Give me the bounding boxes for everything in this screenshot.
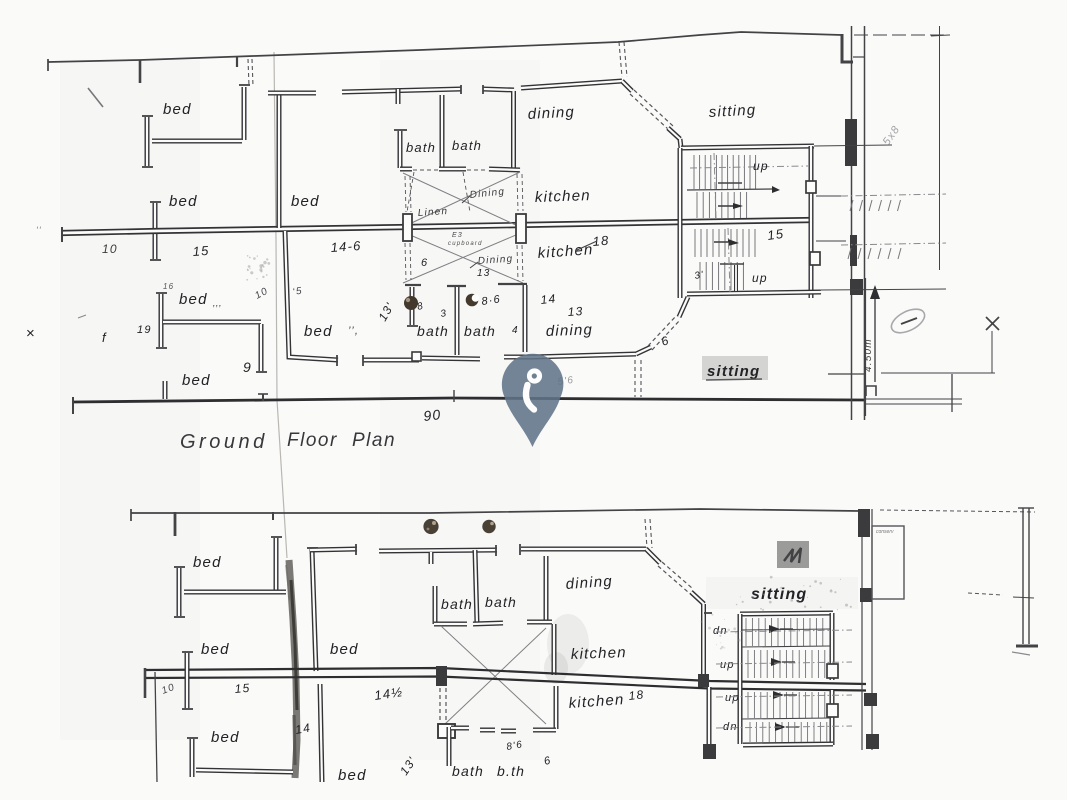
svg-text:13: 13 bbox=[477, 268, 491, 279]
svg-text:bath: bath bbox=[406, 140, 436, 155]
svg-text:up: up bbox=[720, 659, 735, 671]
svg-text:f: f bbox=[102, 330, 107, 345]
svg-text:bath: bath bbox=[452, 138, 482, 153]
svg-text:16: 16 bbox=[163, 282, 174, 291]
svg-text:14: 14 bbox=[294, 720, 312, 737]
svg-text:dn: dn bbox=[723, 721, 738, 733]
svg-text:’’,: ’’, bbox=[348, 325, 359, 337]
svg-text:18: 18 bbox=[592, 233, 610, 249]
svg-text:kitchen: kitchen bbox=[571, 644, 627, 663]
svg-text:15: 15 bbox=[234, 681, 251, 696]
svg-text:90: 90 bbox=[423, 406, 443, 424]
svg-text:10: 10 bbox=[102, 242, 118, 256]
svg-text:up: up bbox=[753, 159, 769, 173]
svg-text:Ground: Ground bbox=[180, 431, 268, 453]
svg-text:Floor: Floor bbox=[287, 430, 338, 451]
svg-text:sitting: sitting bbox=[708, 102, 756, 121]
svg-text:sitting: sitting bbox=[751, 586, 807, 603]
svg-text:dining: dining bbox=[527, 104, 575, 123]
svg-text:E3: E3 bbox=[452, 232, 463, 239]
svg-text:bed: bed bbox=[201, 641, 230, 658]
svg-text:4: 4 bbox=[512, 325, 519, 336]
svg-text:6: 6 bbox=[421, 257, 428, 269]
svg-text:bed: bed bbox=[182, 372, 211, 389]
svg-text:kitchen: kitchen bbox=[535, 187, 591, 206]
svg-text:15: 15 bbox=[766, 226, 785, 243]
svg-text:bed: bed bbox=[169, 193, 198, 210]
svg-text:×: × bbox=[26, 325, 36, 342]
svg-text:9: 9 bbox=[243, 359, 252, 375]
svg-text:bed: bed bbox=[330, 641, 359, 658]
svg-text:3': 3' bbox=[694, 269, 706, 282]
svg-text:bath: bath bbox=[441, 596, 473, 612]
svg-text:bed: bed bbox=[211, 729, 240, 746]
svg-text:bed: bed bbox=[291, 193, 320, 210]
svg-text:bed: bed bbox=[304, 323, 333, 340]
svg-text:Linen: Linen bbox=[417, 206, 448, 219]
svg-text:dining: dining bbox=[565, 573, 613, 593]
svg-text:19: 19 bbox=[137, 324, 152, 336]
svg-text:bath: bath bbox=[452, 763, 484, 779]
svg-text:bath: bath bbox=[417, 323, 449, 339]
svg-text:18: 18 bbox=[628, 687, 645, 703]
svg-text:b.th: b.th bbox=[497, 763, 525, 779]
svg-text:Plan: Plan bbox=[352, 430, 396, 451]
svg-text:bed: bed bbox=[338, 767, 367, 784]
svg-text:14-6: 14-6 bbox=[330, 238, 362, 255]
svg-text:sitting: sitting bbox=[707, 363, 760, 380]
svg-text:cupboard: cupboard bbox=[448, 241, 483, 247]
svg-text:’’’: ’’’ bbox=[212, 304, 222, 315]
svg-text:14: 14 bbox=[540, 291, 557, 307]
svg-text:bed: bed bbox=[179, 291, 208, 308]
svg-text:dining: dining bbox=[546, 321, 594, 340]
svg-text:up: up bbox=[752, 271, 768, 285]
svg-text:bath: bath bbox=[464, 323, 496, 339]
svg-text:15: 15 bbox=[192, 243, 210, 259]
svg-text:up: up bbox=[725, 692, 740, 704]
svg-text:bath: bath bbox=[485, 594, 517, 610]
svg-text:‘‘: ‘‘ bbox=[36, 225, 42, 235]
svg-text:conserv: conserv bbox=[876, 529, 894, 535]
svg-text:bed: bed bbox=[193, 554, 222, 571]
svg-text:4.50m: 4.50m bbox=[863, 338, 874, 372]
svg-text:‘5: ‘5 bbox=[292, 286, 304, 298]
svg-text:bed: bed bbox=[163, 101, 192, 118]
svg-text:13: 13 bbox=[567, 304, 584, 319]
